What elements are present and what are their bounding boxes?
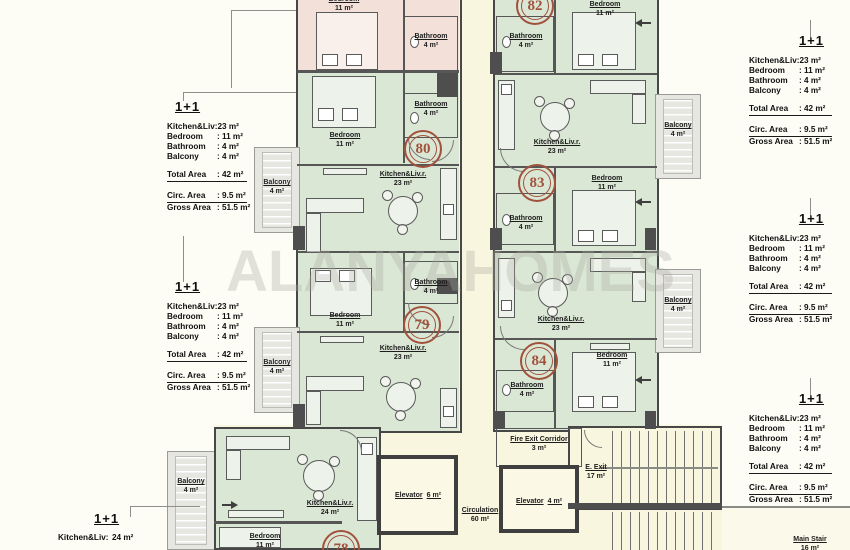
room-label-bathroom-84: Bathroom4 m² xyxy=(500,382,554,399)
unit-type-title: 1+1 xyxy=(749,33,824,48)
room-label-kitchen-79: Kitchen&Liv.r.23 m² xyxy=(372,345,434,362)
room-label-bathroom-79: Bathroom4 m² xyxy=(404,279,458,296)
dresser-icon xyxy=(323,168,367,175)
room-label-kitchen-82: Kitchen&Liv.r.23 m² xyxy=(526,139,588,156)
sofa-icon xyxy=(306,376,364,391)
wall-segment xyxy=(495,73,657,75)
pillow-icon xyxy=(602,230,618,242)
room-label-bedroom-84: Bedroom11 m² xyxy=(585,352,639,369)
wall-segment xyxy=(568,503,722,509)
unit-type-title: 1+1 xyxy=(94,511,188,526)
entry-arrow-icon xyxy=(638,201,651,203)
dresser-icon xyxy=(320,336,364,343)
sofa-icon xyxy=(306,213,321,253)
wall-segment xyxy=(554,0,556,73)
wall-segment xyxy=(297,251,459,253)
dresser-icon xyxy=(228,510,284,518)
pillow-icon xyxy=(602,396,618,408)
room-label-bathroom-top: Bathroom4 m² xyxy=(404,33,458,50)
unit-type-title: 1+1 xyxy=(749,211,824,226)
room-label-bedroom-top: Bedroom11 m² xyxy=(314,0,374,13)
floor-plan-canvas: ALANYAHOMES xyxy=(0,0,850,550)
room-label-kitchen-83: Kitchen&Liv.r.23 m² xyxy=(530,316,592,333)
entry-arrow-icon xyxy=(638,22,651,24)
stove-icon xyxy=(361,443,373,455)
sofa-icon xyxy=(632,94,646,124)
room-label-bathroom-80: Bathroom4 m² xyxy=(404,101,458,118)
spec-block-left-top: 1+1 Kitchen&Liv:23 m² Bedroom: 11 m² Bat… xyxy=(167,99,247,213)
unit-number-79: 79 xyxy=(403,306,441,344)
leader-line xyxy=(231,10,296,11)
room-label-main-stair: Main Stair16 m² xyxy=(778,536,842,550)
chair-icon xyxy=(380,376,391,387)
unit-type-title: 1+1 xyxy=(749,391,824,406)
spec-block-right-top: 1+1 Kitchen&Liv:23 m² Bedroom: 11 m² Bat… xyxy=(749,33,832,147)
room-label-bedroom-78: Bedroom11 m² xyxy=(238,533,292,550)
room-label-balcony-left-2: Balcony4 m² xyxy=(257,359,297,376)
wall-segment xyxy=(493,411,505,429)
room-label-elevator-6: Elevator6 m² xyxy=(384,492,452,501)
room-label-balcony-left-1: Balcony4 m² xyxy=(257,179,297,196)
chair-icon xyxy=(329,456,340,467)
unit-type-title: 1+1 xyxy=(175,99,247,114)
chair-icon xyxy=(534,96,545,107)
sofa-icon xyxy=(590,80,646,94)
sofa-icon xyxy=(306,391,321,425)
sofa-icon xyxy=(226,450,241,480)
pillow-icon xyxy=(578,396,594,408)
wall-segment xyxy=(214,521,342,524)
pillow-icon xyxy=(602,54,618,66)
wall-segment xyxy=(293,226,305,250)
stair-hatch xyxy=(612,512,716,550)
room-label-bedroom-79: Bedroom11 m² xyxy=(318,312,372,329)
chair-icon xyxy=(410,378,421,389)
unit-number-83: 83 xyxy=(518,164,556,202)
room-label-e-exit: E. Exit17 m² xyxy=(574,464,618,481)
unit-number-80: 80 xyxy=(404,130,442,168)
chair-icon xyxy=(382,190,393,201)
wall-segment xyxy=(293,404,305,428)
room-label-bathroom-83: Bathroom4 m² xyxy=(499,215,553,232)
room-label-bathroom-82: Bathroom4 m² xyxy=(499,33,553,50)
pillow-icon xyxy=(578,230,594,242)
room-label-elevator-4: Elevator4 m² xyxy=(500,498,578,507)
chair-icon xyxy=(562,274,573,285)
entry-arrow-icon xyxy=(222,504,235,506)
room-label-balcony-78: Balcony4 m² xyxy=(169,478,213,495)
sofa-icon xyxy=(590,258,646,272)
leader-line xyxy=(183,92,296,93)
chair-icon xyxy=(532,272,543,283)
stove-icon xyxy=(501,84,512,95)
room-label-kitchen-78: Kitchen&Liv.r.24 m² xyxy=(299,500,361,517)
unit-type-title: 1+1 xyxy=(175,279,247,294)
room-label-kitchen-80: Kitchen&Liv.r.23 m² xyxy=(372,171,434,188)
sofa-icon xyxy=(306,198,364,213)
room-label-balcony-right-1: Balcony4 m² xyxy=(656,122,700,139)
room-label-fire-exit: Fire Exit Corridor3 m² xyxy=(494,436,584,453)
pillow-icon xyxy=(578,54,594,66)
stove-icon xyxy=(443,204,454,215)
wall-segment xyxy=(722,506,850,508)
leader-line xyxy=(231,10,232,88)
room-label-circulation: Circulation60 m² xyxy=(452,507,508,524)
chair-icon xyxy=(412,192,423,203)
chair-icon xyxy=(397,224,408,235)
pillow-icon xyxy=(339,270,355,282)
pillow-icon xyxy=(322,54,338,66)
chair-icon xyxy=(297,454,308,465)
leader-line xyxy=(183,236,184,282)
room-label-bedroom-80: Bedroom11 m² xyxy=(318,132,372,149)
pillow-icon xyxy=(318,108,334,121)
spec-block-right-mid: 1+1 Kitchen&Liv:23 m² Bedroom: 11 m² Bat… xyxy=(749,211,832,325)
leader-line xyxy=(130,506,200,507)
spec-block-left-bottom-partial: 1+1 Kitchen&Liv:24 m² xyxy=(58,511,188,543)
pillow-icon xyxy=(346,54,362,66)
dresser-icon xyxy=(590,343,630,350)
room-label-balcony-right-2: Balcony4 m² xyxy=(656,297,700,314)
room-label-bedroom-82: Bedroom11 m² xyxy=(578,1,632,18)
pillow-icon xyxy=(315,270,331,282)
chair-icon xyxy=(564,98,575,109)
room-label-bedroom-83: Bedroom11 m² xyxy=(580,175,634,192)
wall-segment xyxy=(490,52,502,74)
sofa-icon xyxy=(226,436,290,450)
wall-segment xyxy=(645,411,656,429)
sofa-icon xyxy=(632,272,646,302)
wall-segment xyxy=(437,73,458,97)
wall-segment xyxy=(495,251,657,253)
spec-block-right-bottom: 1+1 Kitchen&Liv:23 m² Bedroom: 11 m² Bat… xyxy=(749,391,832,505)
stove-icon xyxy=(443,406,454,417)
pillow-icon xyxy=(342,108,358,121)
entry-arrow-icon xyxy=(638,379,651,381)
unit-number-84: 84 xyxy=(520,342,558,380)
wall-segment xyxy=(645,228,656,250)
stove-icon xyxy=(501,300,512,311)
chair-icon xyxy=(395,410,406,421)
spec-block-left-mid: 1+1 Kitchen&Liv:23 m² Bedroom: 11 m² Bat… xyxy=(167,279,247,393)
